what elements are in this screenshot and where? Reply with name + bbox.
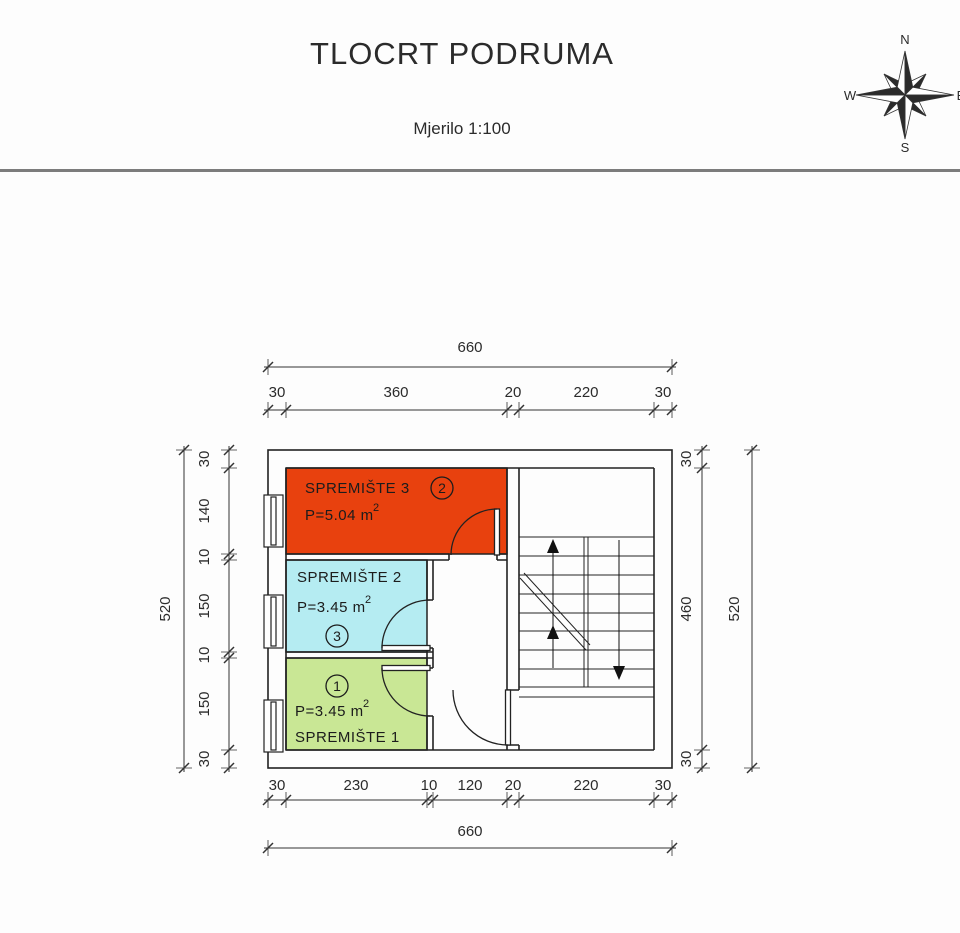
dim-right-seg: 30 [678,451,695,468]
window-bottom [264,700,283,752]
dim-bottom-seg: 120 [457,777,482,794]
dim-bottom-seg: 220 [573,777,598,794]
room-3-area-sup: 2 [373,502,379,514]
dim-bottom-seg: 30 [269,777,286,794]
dim-left-seg: 30 [196,451,213,468]
stair-divider [584,537,588,687]
dim-top-seg: 30 [655,384,672,401]
door-corridor-stairs [453,690,511,745]
dim-left-seg: 150 [196,593,213,618]
dim-right-seg: 460 [678,596,695,621]
stair-down-arrow [613,540,625,680]
room-1-name: SPREMIŠTE 1 [295,729,400,746]
drawing-sheet: TLOCRT PODRUMA Mjerilo 1:100 N E S W [0,0,960,933]
dim-bottom-seg: 230 [343,777,368,794]
dim-left-seg: 10 [196,647,213,664]
dim-left-seg: 150 [196,691,213,716]
dim-right-seg: 30 [678,751,695,768]
room-1-area-label: P=3.45 m [295,703,364,720]
room-2-number: 3 [333,628,341,644]
staircase [519,537,654,697]
dim-left-seg: 10 [196,549,213,566]
dimension-labels: 660 30 360 20 220 30 30 230 10 120 20 22… [157,339,743,840]
dim-bottom-seg: 20 [505,777,522,794]
dim-bottom-seg: 10 [421,777,438,794]
room-1-area-sup: 2 [363,698,369,710]
room-2-name: SPREMIŠTE 2 [297,569,402,586]
dim-top-seg: 220 [573,384,598,401]
dim-left-seg: 140 [196,498,213,523]
stair-up-arrow [547,539,559,668]
dim-right-total: 520 [726,596,743,621]
dim-top-seg: 20 [505,384,522,401]
window-middle [264,595,283,648]
stair-treads [519,537,654,697]
room-3-number: 2 [438,480,446,496]
dim-top-total: 660 [457,339,482,356]
dim-bottom-total: 660 [457,823,482,840]
floor-plan: SPREMIŠTE 3 2 P=5.04 m 2 SPREMIŠTE 2 P=3… [0,0,960,933]
dim-top-seg: 360 [383,384,408,401]
room-1-number: 1 [333,678,341,694]
room-3-area-label: P=5.04 m [305,507,374,524]
room-3-name: SPREMIŠTE 3 [305,480,410,497]
dim-bottom-seg: 30 [655,777,672,794]
window-top [264,495,283,547]
windows [264,495,283,752]
room-2-area-sup: 2 [365,594,371,606]
dim-left-seg: 30 [196,751,213,768]
room-2-area-label: P=3.45 m [297,599,366,616]
dim-left-total: 520 [157,596,174,621]
dim-top-seg: 30 [269,384,286,401]
